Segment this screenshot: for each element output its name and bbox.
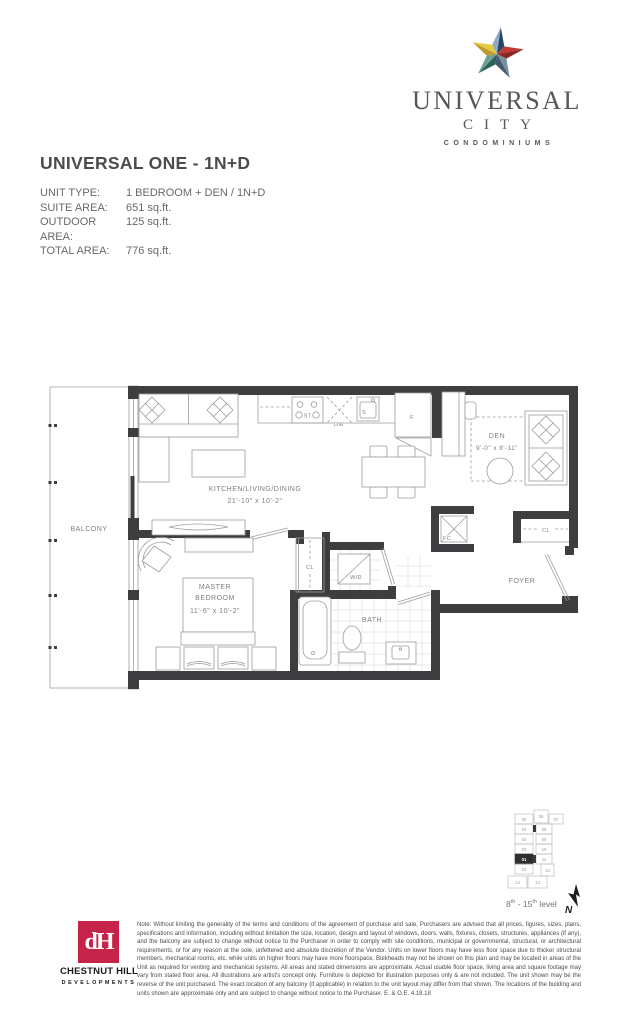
nightstand-left — [156, 647, 180, 670]
label-fc: FC — [443, 536, 451, 542]
svg-text:04: 04 — [522, 827, 527, 832]
svg-text:02: 02 — [522, 837, 527, 842]
svg-text:13: 13 — [535, 880, 540, 885]
stove: ST — [292, 397, 323, 423]
info-row-suite-area: SUITE AREA: 651 sq.ft. — [40, 201, 265, 216]
bedroom-chair — [138, 537, 174, 572]
developer-monogram: dH — [84, 929, 112, 956]
coffee-table — [192, 450, 245, 477]
floorplan-drawing: BALCONY — [42, 380, 582, 700]
hall-closet: CL — [296, 538, 324, 592]
svg-text:06: 06 — [539, 814, 544, 819]
info-label: TOTAL AREA: — [40, 244, 126, 259]
developer-logo: dH — [78, 921, 119, 963]
developer-name: CHESTNUT HILL — [50, 966, 148, 977]
dining-table — [362, 446, 425, 498]
label-master-dim: 11'-6" x 10'-2" — [190, 608, 240, 615]
window-wall — [128, 386, 139, 689]
info-label: UNIT TYPE: — [40, 186, 126, 201]
brand-name-2: CITY — [398, 117, 596, 134]
label-cl-foyer: CL — [542, 528, 550, 534]
svg-text:12: 12 — [545, 868, 550, 873]
developer-subtitle: DEVELOPMENTS — [50, 980, 148, 986]
page-title: UNIVERSAL ONE - 1N+D — [40, 153, 250, 174]
svg-text:11: 11 — [542, 857, 547, 862]
svg-text:07: 07 — [554, 817, 559, 822]
label-master-2: BEDROOM — [195, 595, 235, 602]
info-row-unit-type: UNIT TYPE: 1 BEDROOM + DEN / 1N+D — [40, 186, 265, 201]
svg-text:09: 09 — [542, 837, 547, 842]
label-sink: S — [362, 410, 366, 416]
toilet — [339, 626, 365, 663]
bedroom-door — [251, 528, 289, 540]
label-kitchen-living: KITCHEN/LIVING/DINING — [209, 486, 302, 493]
svg-text:10: 10 — [542, 847, 547, 852]
nightstand-right — [252, 647, 276, 670]
svg-text:14: 14 — [515, 880, 520, 885]
info-value: 776 sq.ft. — [126, 244, 171, 259]
star-icon — [464, 24, 530, 84]
vanity-sink — [386, 642, 416, 664]
keyplan-core — [533, 855, 536, 863]
info-label: SUITE AREA: — [40, 201, 126, 216]
unit-info: UNIT TYPE: 1 BEDROOM + DEN / 1N+D SUITE … — [40, 186, 265, 259]
label-master-1: MASTER — [199, 584, 231, 591]
label-foyer: FOYER — [509, 578, 536, 585]
info-value: 651 sq.ft. — [126, 201, 171, 216]
laundry-door — [381, 548, 395, 585]
disclaimer-text: Note: Without limiting the generality of… — [137, 921, 581, 998]
info-row-total-area: TOTAL AREA: 776 sq.ft. — [40, 244, 265, 259]
bath-door — [398, 592, 431, 605]
info-value: 1 BEDROOM + DEN / 1N+D — [126, 186, 265, 201]
entry-door — [545, 554, 570, 601]
label-bath: BATH — [362, 617, 382, 624]
brand-logo: UNIVERSAL CITY CONDOMINIUMS — [398, 24, 596, 147]
info-label: OUTDOOR AREA: — [40, 215, 126, 244]
svg-text:01: 01 — [522, 857, 527, 862]
foyer-area: FOYER — [509, 554, 570, 601]
svg-text:05: 05 — [522, 817, 527, 822]
keyplan-diagram: 05 06 07 04 08 02 09 03 10 01 11 15 12 1… — [505, 808, 575, 894]
balcony-slider-panel — [131, 476, 135, 520]
foyer-closet: CL — [521, 528, 569, 542]
sink: S — [357, 397, 379, 421]
label-balcony: BALCONY — [71, 526, 108, 533]
balcony-area: BALCONY — [49, 387, 139, 688]
info-row-outdoor-area: OUTDOOR AREA: 125 sq.ft. — [40, 215, 265, 244]
label-den-dim: 9'-0" x 8'-11" — [476, 445, 518, 452]
level-indicator: 8th - 15th level — [506, 899, 557, 909]
laundry-closet: W/D — [330, 548, 395, 590]
svg-text:08: 08 — [542, 827, 547, 832]
label-den: DEN — [489, 433, 505, 440]
master-bedroom-area: MASTER BEDROOM 11'-6" x 10'-2" — [138, 528, 288, 670]
page: UNIVERSAL CITY CONDOMINIUMS UNIVERSAL ON… — [0, 0, 622, 1024]
label-stove: ST — [304, 414, 312, 420]
tv-console — [152, 520, 245, 535]
bathtub — [299, 597, 331, 665]
keyplan-core — [533, 825, 536, 832]
info-value: 125 sq.ft. — [126, 215, 171, 244]
den-area: DEN 9'-0" x 8'-11" — [442, 392, 567, 485]
keyplan-units: 05 06 07 04 08 02 09 03 10 01 11 15 12 1… — [508, 810, 563, 888]
north-label: N — [565, 905, 572, 916]
den-chair — [487, 458, 513, 484]
svg-text:15: 15 — [522, 867, 527, 872]
label-wd: W/D — [350, 575, 362, 581]
fan-coil-closet: FC — [441, 516, 467, 542]
label-kitchen-dim: 21'-10" x 10'-2" — [228, 498, 283, 505]
label-fridge: F — [410, 415, 414, 421]
bed — [181, 578, 255, 669]
brand-name: UNIVERSAL — [398, 86, 596, 116]
label-dw: DW — [334, 422, 344, 428]
den-sofa — [525, 411, 567, 485]
dresser — [185, 538, 253, 552]
brand-tagline: CONDOMINIUMS — [398, 140, 596, 147]
living-area: KITCHEN/LIVING/DINING 21'-10" x 10'-2" — [139, 394, 301, 535]
svg-text:03: 03 — [522, 847, 527, 852]
kitchen-area: ST DW S F — [258, 393, 431, 498]
label-cl-hall: CL — [306, 565, 314, 571]
